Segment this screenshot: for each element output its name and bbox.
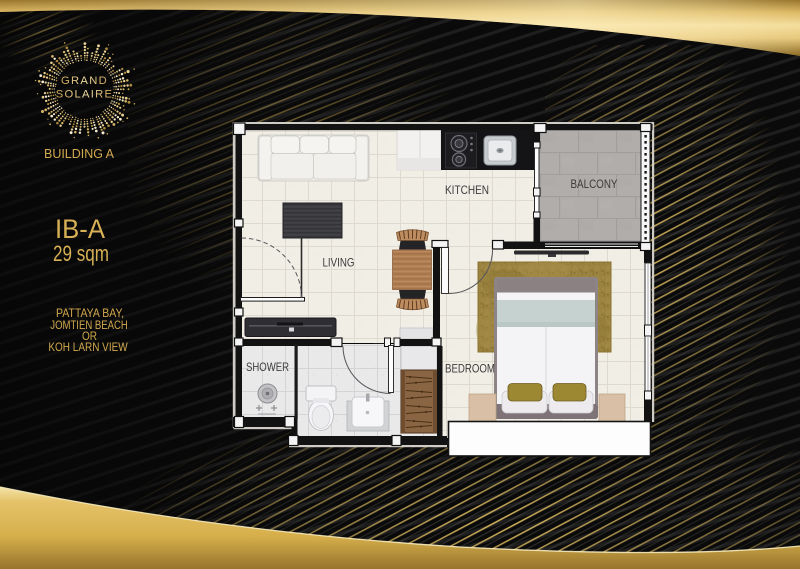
svg-text:29 sqm: 29 sqm (53, 241, 109, 266)
svg-text:IB-A: IB-A (55, 214, 105, 244)
svg-text:SHOWER: SHOWER (246, 360, 289, 374)
svg-text:KOH LARN VIEW: KOH LARN VIEW (48, 340, 128, 354)
svg-text:BUILDING A: BUILDING A (44, 146, 114, 161)
svg-text:KITCHEN: KITCHEN (445, 183, 489, 197)
svg-text:GRAND: GRAND (61, 75, 108, 87)
svg-text:BEDROOM: BEDROOM (445, 362, 495, 376)
svg-text:BALCONY: BALCONY (571, 177, 618, 191)
svg-text:SOLAIRE: SOLAIRE (56, 89, 114, 101)
svg-text:LIVING: LIVING (323, 256, 355, 270)
